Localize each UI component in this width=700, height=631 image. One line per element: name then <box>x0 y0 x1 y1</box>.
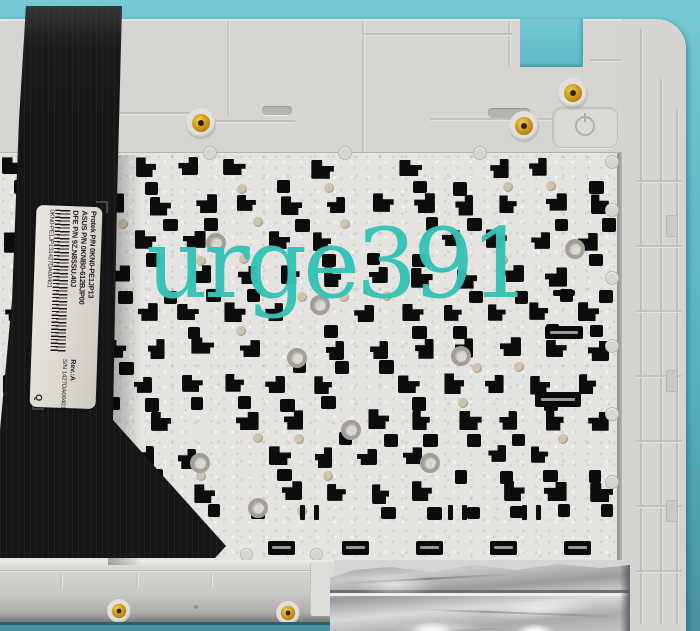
key-clip <box>248 498 268 518</box>
key-clip <box>323 471 333 481</box>
edge-bump <box>338 146 352 160</box>
key-clip <box>499 411 517 430</box>
key-clip <box>194 484 215 503</box>
key-clip <box>384 434 398 447</box>
key-clip <box>412 411 429 430</box>
key-clip <box>514 362 524 372</box>
key-clip <box>462 505 467 520</box>
key-clip <box>589 470 601 484</box>
key-clip <box>282 481 303 500</box>
key-clip <box>544 482 567 501</box>
key-clip <box>178 157 198 175</box>
key-clip <box>190 453 210 473</box>
key-clip <box>236 326 246 336</box>
key-clip <box>287 348 307 368</box>
key-clip <box>381 507 395 519</box>
edge-rib <box>636 310 682 312</box>
key-clip <box>341 420 361 440</box>
edge-rib <box>660 79 662 624</box>
key-clip <box>531 446 549 462</box>
foil-shine <box>350 572 440 598</box>
rail-tick <box>60 574 62 588</box>
edge-bump <box>473 146 487 160</box>
edge-bump <box>605 339 619 353</box>
screw-hole <box>521 123 527 129</box>
key-clip <box>324 325 338 338</box>
key-clip <box>311 160 334 179</box>
key-clip <box>324 183 334 193</box>
key-clip <box>545 267 567 286</box>
watermark-text: urge391 <box>146 216 527 312</box>
key-clip <box>294 434 304 444</box>
key-clip <box>368 409 389 429</box>
key-clip <box>236 412 259 431</box>
key-clip <box>589 254 603 266</box>
key-clip <box>467 507 480 519</box>
key-clip <box>550 331 578 334</box>
key-clip <box>379 360 394 373</box>
key-clip <box>145 182 159 195</box>
key-clip <box>458 398 468 408</box>
key-clip <box>284 410 303 429</box>
mold-seam <box>362 21 364 151</box>
key-clip <box>420 546 439 549</box>
key-clip <box>589 181 603 194</box>
key-clip <box>269 446 292 465</box>
key-clip <box>578 302 600 321</box>
key-clip <box>555 219 568 231</box>
edge-bump <box>605 271 619 285</box>
mold-bump <box>262 106 292 115</box>
mold-seam <box>362 33 512 35</box>
key-clip <box>415 339 433 359</box>
brass-screw-insert <box>558 78 588 108</box>
key-clip <box>599 290 613 303</box>
key-clip <box>601 504 614 516</box>
edge-bump <box>605 475 619 489</box>
key-clip <box>357 449 377 465</box>
key-clip <box>145 398 159 412</box>
key-clip <box>253 433 263 443</box>
revision-text: Rev.:A <box>67 359 78 404</box>
key-clip <box>522 505 527 520</box>
key-clip <box>590 325 604 338</box>
key-clip <box>541 398 575 401</box>
edge-rib <box>640 29 642 624</box>
key-clip <box>500 337 521 356</box>
screw-hole <box>286 611 291 616</box>
mold-seam <box>508 21 510 67</box>
key-clip <box>546 340 567 357</box>
key-clip <box>529 158 547 176</box>
key-clip <box>565 239 585 259</box>
key-clip <box>453 326 466 339</box>
part-numbers-block: Protek P/N 0KN0-PE1JP13 ASUS P/N 0KNB0-6… <box>35 209 98 357</box>
edge-bump <box>605 407 619 421</box>
edge-rib <box>636 570 682 572</box>
edge-bump <box>605 203 619 217</box>
screw-hole <box>198 120 204 126</box>
key-clip <box>423 434 438 448</box>
rail-dot <box>194 605 198 609</box>
key-clip <box>326 341 344 361</box>
key-clip <box>148 339 165 359</box>
background-under-rail <box>0 622 334 631</box>
edge-rib <box>636 245 682 247</box>
key-clip <box>529 302 548 320</box>
key-clip <box>280 399 295 412</box>
key-clip <box>277 469 291 482</box>
key-clip <box>448 505 453 520</box>
hinge-cutout <box>520 19 583 67</box>
key-clip <box>182 375 203 392</box>
product-photo: Protek P/N 0KN0-PE1JP13 ASUS P/N 0KNB0-6… <box>0 0 700 631</box>
key-clip <box>504 481 524 501</box>
foil-edge-shadow <box>620 560 630 631</box>
edge-rib <box>636 180 682 182</box>
key-clip <box>238 396 251 408</box>
key-clip <box>223 159 245 175</box>
foil-shine <box>479 593 600 625</box>
key-clip <box>277 180 290 193</box>
key-clip <box>427 507 441 520</box>
key-clip <box>327 484 346 501</box>
key-clip <box>494 546 513 549</box>
key-clip <box>451 346 471 366</box>
edge-rib <box>676 109 678 624</box>
adhesive-paste-blob <box>515 624 555 631</box>
key-clip <box>237 184 247 194</box>
key-clip <box>265 376 285 393</box>
power-icon-stem <box>584 113 586 122</box>
foil-tape <box>330 560 630 631</box>
key-clip <box>191 337 214 353</box>
bottom-rail <box>0 560 334 622</box>
serial-number: S/N 1427DA00401 <box>59 359 69 404</box>
label-side-block: Rev.:A S/N 1427DA00401 Q <box>34 355 94 405</box>
palmrest-right-edge <box>622 19 686 631</box>
edge-bump <box>605 155 619 169</box>
rail-tick <box>210 574 212 588</box>
key-clip <box>208 504 220 517</box>
key-clip <box>412 397 426 410</box>
key-clip <box>300 505 305 520</box>
key-clip <box>488 445 506 462</box>
key-clip <box>512 434 525 447</box>
mold-seam <box>205 120 295 122</box>
key-clip <box>372 484 389 504</box>
key-clip <box>546 193 567 210</box>
key-clip <box>412 481 432 501</box>
key-clip <box>420 453 440 473</box>
key-clip <box>399 160 422 176</box>
key-clip <box>602 218 616 231</box>
part-label: Protek P/N 0KN0-PE1JP13 ASUS P/N 0KNB0-6… <box>29 205 102 409</box>
edge-clip-tab <box>666 370 678 392</box>
rail-seam <box>0 570 334 571</box>
key-clip <box>531 232 550 249</box>
key-clip <box>398 375 420 393</box>
brass-screw-insert <box>186 108 216 138</box>
key-clip <box>191 397 203 410</box>
screw-hole <box>117 609 122 614</box>
power-button-emblem <box>552 107 618 148</box>
rail-tick <box>136 574 138 588</box>
key-clip <box>314 505 319 520</box>
key-clip <box>568 546 587 549</box>
key-clip <box>553 290 575 296</box>
edge-clip-tab <box>666 500 678 522</box>
brass-screw-insert <box>509 111 539 141</box>
inspection-mark: Q <box>34 394 44 401</box>
key-clip <box>413 181 427 193</box>
key-clip <box>546 410 564 430</box>
key-clip <box>315 447 333 468</box>
key-clip <box>453 182 467 196</box>
key-clip <box>536 505 541 520</box>
edge-clip-tab <box>666 215 678 237</box>
edge-bump <box>203 146 217 160</box>
key-clip <box>485 375 504 394</box>
key-clip <box>459 411 481 431</box>
edge-rib <box>636 440 682 442</box>
key-clip <box>314 376 332 394</box>
brass-screw-insert <box>107 599 131 623</box>
key-clip <box>412 326 426 339</box>
key-clip <box>455 470 468 484</box>
key-clip <box>467 434 481 448</box>
key-clip <box>543 470 558 482</box>
key-clip <box>579 374 597 394</box>
key-clip <box>240 340 260 357</box>
key-clip <box>558 504 570 516</box>
key-clip <box>321 396 336 409</box>
key-clip <box>151 412 171 431</box>
key-clip <box>503 182 513 192</box>
key-clip <box>272 546 291 549</box>
key-clip <box>346 546 365 549</box>
key-clip <box>225 374 244 392</box>
key-clip <box>335 361 349 374</box>
key-clip <box>444 373 464 394</box>
key-clip <box>472 363 482 373</box>
key-clip <box>490 159 508 178</box>
key-clip <box>510 506 523 518</box>
key-clip <box>558 434 568 444</box>
key-clip <box>370 341 388 359</box>
key-clip <box>546 181 556 191</box>
mold-seam <box>227 21 229 115</box>
part-label-content: Protek P/N 0KN0-PE1JP13 ASUS P/N 0KNB0-6… <box>34 209 99 405</box>
screw-hole <box>570 90 576 96</box>
